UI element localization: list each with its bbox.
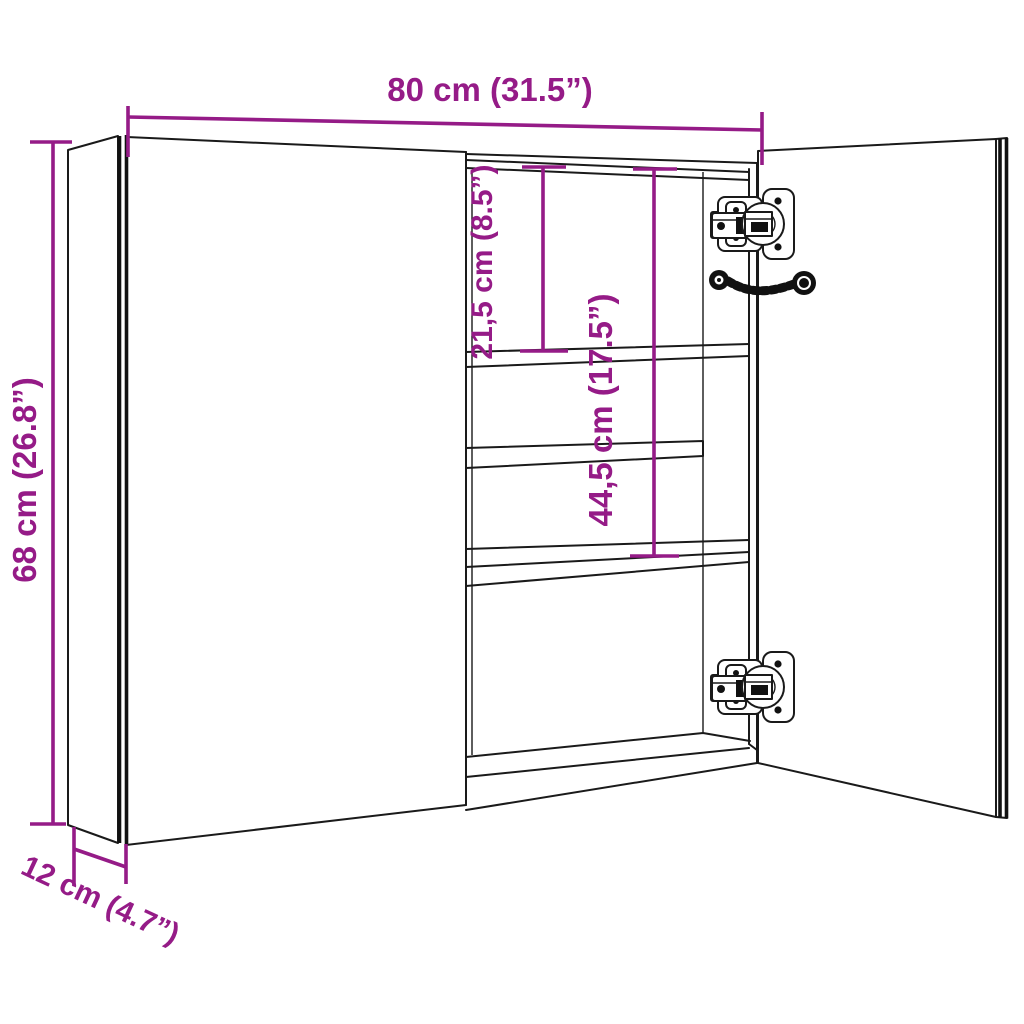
cabinet-line-art	[68, 135, 1007, 845]
dimension-diagram: 80 cm (31.5”) 68 cm (26.8”) 12 cm (4.7”)…	[0, 0, 1024, 1024]
depth-dimension-label: 12 cm (4.7”)	[16, 849, 184, 951]
left-mirror-door	[120, 135, 467, 845]
dimension-depth: 12 cm (4.7”)	[16, 827, 184, 951]
hinge-bottom	[711, 652, 794, 722]
cabinet-dimension-drawing: 80 cm (31.5”) 68 cm (26.8”) 12 cm (4.7”)…	[0, 0, 1024, 1024]
left-side-panel	[68, 136, 118, 843]
dimension-lower-shelf-gap: 44,5 cm (17.5”)	[582, 169, 679, 556]
dimension-height: 68 cm (26.8”)	[6, 142, 72, 824]
lower-shelf-gap-label: 44,5 cm (17.5”)	[582, 294, 619, 527]
upper-shelf-gap-label: 21,5 cm (8.5”)	[466, 164, 499, 359]
hinge-top	[711, 189, 794, 259]
lower-shelf	[466, 540, 749, 586]
height-dimension-label: 68 cm (26.8”)	[6, 377, 43, 582]
right-mirror-door	[758, 138, 1007, 819]
dimension-upper-shelf-gap: 21,5 cm (8.5”)	[466, 164, 568, 359]
width-dimension-label: 80 cm (31.5”)	[387, 71, 592, 108]
